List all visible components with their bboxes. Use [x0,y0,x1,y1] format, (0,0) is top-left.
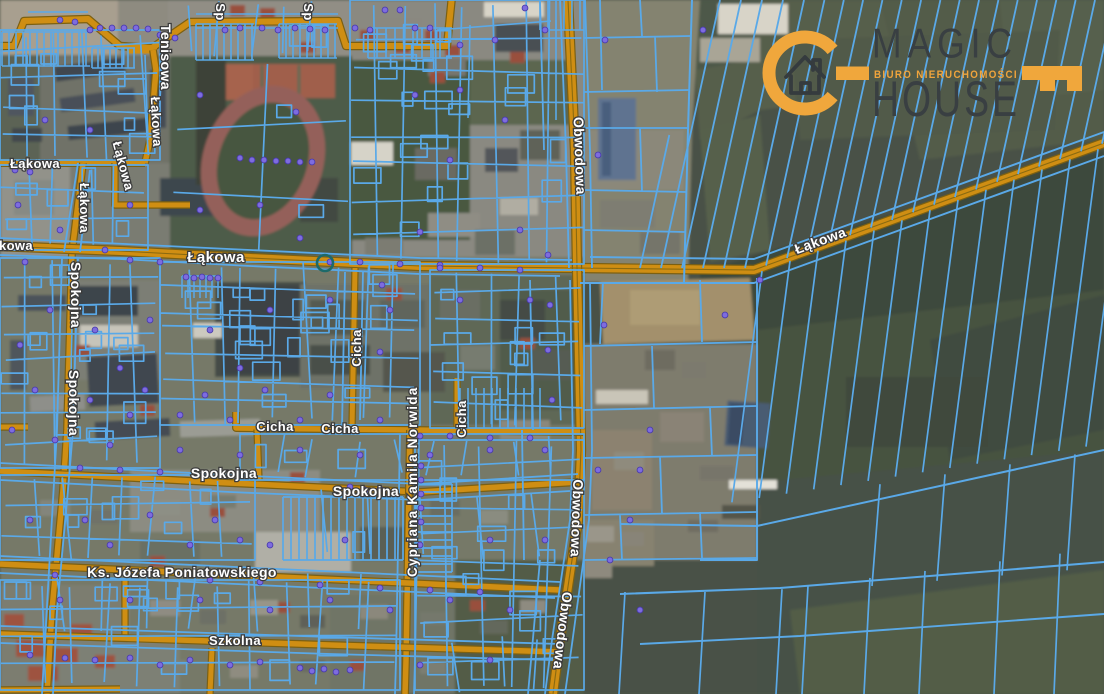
svg-text:Łąkowa: Łąkowa [187,249,245,266]
svg-text:Obwodowa: Obwodowa [568,479,587,557]
svg-text:Obwodowa: Obwodowa [571,117,590,195]
svg-text:Cypriana Kamila Norwida: Cypriana Kamila Norwida [405,387,420,577]
svg-text:Łąkowa: Łąkowa [10,156,60,171]
svg-text:Sp: Sp [213,3,228,20]
svg-text:Spokojna: Spokojna [333,483,399,499]
svg-text:Sp: Sp [301,3,316,20]
svg-text:Szkolna: Szkolna [209,633,261,648]
svg-text:Tenisowa: Tenisowa [158,24,174,90]
svg-text:Spokojna: Spokojna [66,370,82,436]
svg-text:Spokojna: Spokojna [191,465,257,481]
svg-text:Ks. Józefa Poniatowskiego: Ks. Józefa Poniatowskiego [87,564,277,580]
svg-text:Łąkowa: Łąkowa [148,96,166,147]
svg-text:MAGIC: MAGIC [872,20,1018,67]
svg-text:Łąkowa: Łąkowa [77,183,92,233]
svg-text:HOUSE: HOUSE [872,71,1020,127]
svg-text:Spokojna: Spokojna [68,262,84,328]
svg-text:Cicha: Cicha [256,419,294,434]
svg-text:Cicha: Cicha [349,329,364,367]
svg-text:Cicha: Cicha [321,421,359,436]
svg-text:Cicha: Cicha [454,400,469,438]
svg-text:kowa: kowa [0,238,33,253]
